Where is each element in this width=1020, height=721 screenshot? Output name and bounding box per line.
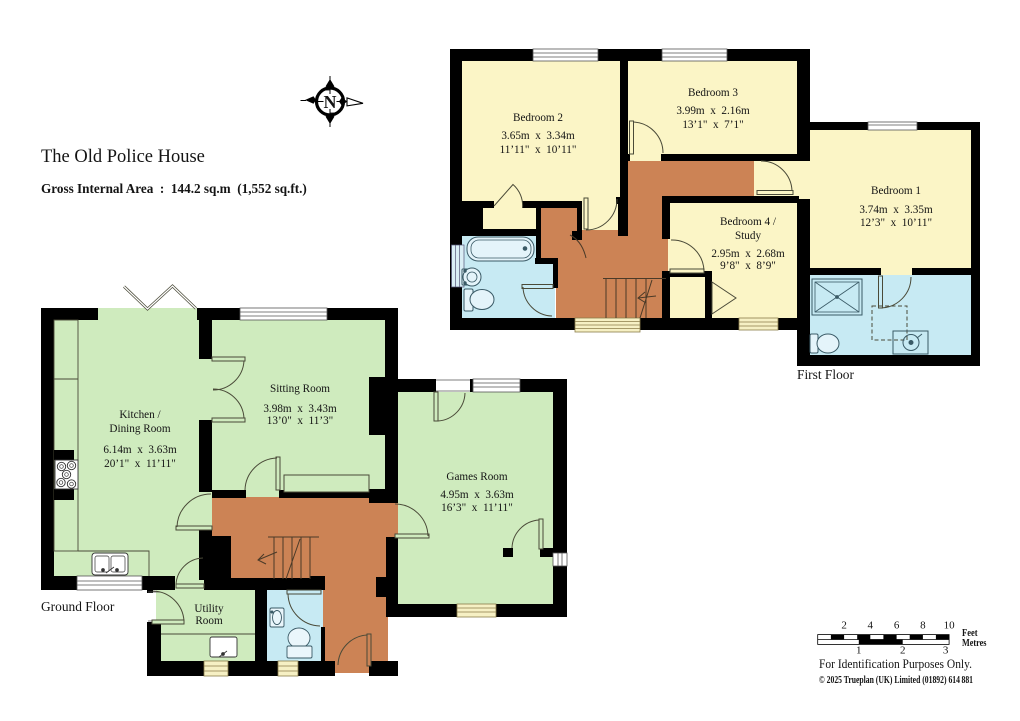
svg-text:10: 10: [944, 620, 956, 632]
svg-text:© 2025 Trueplan (UK) Limited (: © 2025 Trueplan (UK) Limited (01892) 614…: [819, 675, 973, 686]
svg-text:Bedroom 3: Bedroom 3: [688, 87, 738, 99]
svg-text:6.14m x 3.63m: 6.14m x 3.63m: [103, 444, 177, 456]
svg-text:3.98m x 3.43m: 3.98m x 3.43m: [263, 403, 337, 415]
svg-text:Room: Room: [195, 615, 223, 627]
svg-text:Games Room: Games Room: [446, 471, 508, 483]
svg-text:3.74m x 3.35m: 3.74m x 3.35m: [859, 204, 933, 216]
svg-text:Kitchen /: Kitchen /: [119, 409, 161, 421]
svg-text:For Identification Purposes On: For Identification Purposes Only.: [819, 656, 972, 671]
svg-text:13’1" x 7’1": 13’1" x 7’1": [682, 119, 743, 131]
svg-text:12’3" x 10’11": 12’3" x 10’11": [860, 217, 932, 229]
svg-text:Study: Study: [735, 230, 762, 242]
svg-text:2.95m x 2.68m: 2.95m x 2.68m: [711, 248, 785, 260]
svg-text:9’8" x 8’9": 9’8" x 8’9": [720, 260, 776, 272]
svg-text:13’0" x 11’3": 13’0" x 11’3": [267, 415, 334, 427]
svg-text:Utility: Utility: [194, 603, 224, 615]
svg-text:N: N: [324, 92, 337, 112]
svg-text:Dining Room: Dining Room: [109, 423, 171, 435]
svg-text:11’11" x 10’11": 11’11" x 10’11": [500, 144, 577, 156]
svg-text:Sitting Room: Sitting Room: [270, 383, 330, 395]
svg-text:3.65m x 3.34m: 3.65m x 3.34m: [501, 130, 575, 142]
svg-text:4.95m x 3.63m: 4.95m x 3.63m: [440, 489, 514, 501]
svg-text:Metres: Metres: [962, 638, 987, 649]
svg-text:Bedroom 2: Bedroom 2: [513, 112, 563, 124]
svg-text:20’1" x 11’11": 20’1" x 11’11": [104, 458, 176, 470]
svg-text:3: 3: [943, 645, 949, 657]
svg-text:4: 4: [868, 620, 874, 632]
svg-text:The Old Police House: The Old Police House: [41, 147, 205, 167]
svg-text:1: 1: [856, 645, 862, 657]
svg-text:Ground Floor: Ground Floor: [41, 599, 115, 614]
svg-text:3.99m x 2.16m: 3.99m x 2.16m: [676, 105, 750, 117]
svg-text:16’3" x 11’11": 16’3" x 11’11": [441, 502, 513, 514]
svg-text:6: 6: [894, 620, 900, 632]
svg-text:Bedroom 1: Bedroom 1: [871, 185, 921, 197]
svg-text:2: 2: [900, 645, 906, 657]
svg-text:Gross Internal Area : 144.2: Gross Internal Area : 144.2 sq.m (1,552 …: [41, 181, 307, 196]
svg-text:First Floor: First Floor: [797, 367, 854, 382]
svg-text:Bedroom 4 /: Bedroom 4 /: [720, 216, 777, 228]
svg-text:2: 2: [841, 620, 847, 632]
svg-text:8: 8: [920, 620, 926, 632]
